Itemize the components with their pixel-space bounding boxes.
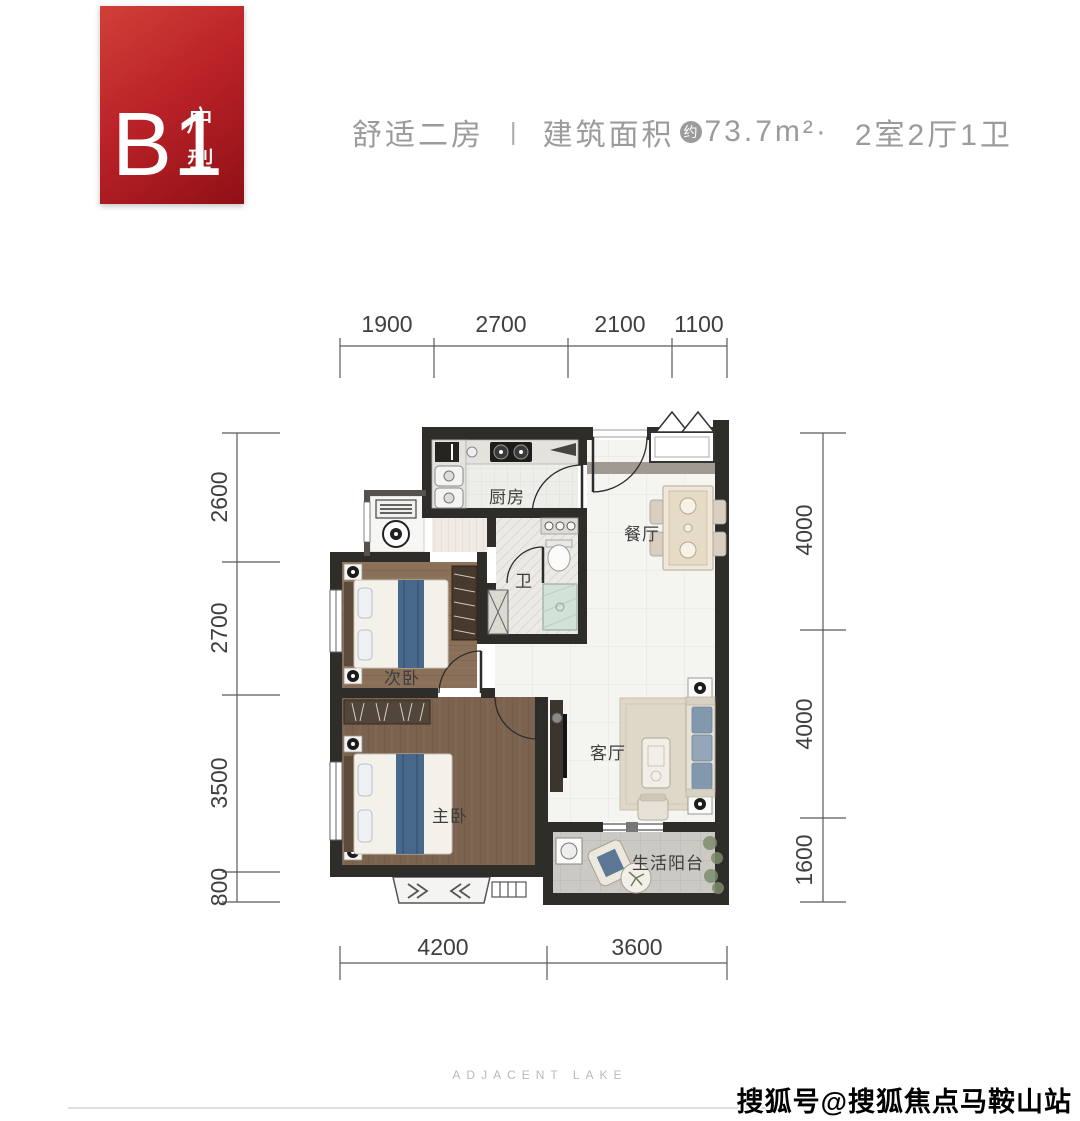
page: B1 户型 舒适二房 | 建筑面积 约 73.7m²· 2室2厅1卫	[0, 0, 1080, 1121]
label-bedroom2: 次卧	[384, 669, 420, 688]
dim-top-2: 2700	[475, 311, 526, 337]
wardrobe	[452, 566, 477, 640]
plant-triangle-icon	[656, 412, 688, 432]
entry-threshold	[593, 430, 647, 437]
dim-top-3: 2100	[594, 311, 645, 337]
entry-sill-wall	[587, 462, 715, 474]
toilet	[548, 545, 570, 571]
dim-right-2: 4000	[791, 698, 817, 749]
dim-right-3: 1600	[791, 834, 817, 885]
label-living: 客厅	[590, 744, 626, 763]
dim-right-1: 4000	[791, 504, 817, 555]
label-balcony: 生活阳台	[632, 854, 704, 873]
fridge	[435, 442, 459, 462]
entry-flower-box	[650, 412, 714, 462]
coffee-table	[642, 738, 670, 788]
label-dining: 餐厅	[624, 525, 660, 544]
dim-bottom-2: 3600	[611, 934, 662, 960]
dim-left-1: 2600	[206, 471, 232, 522]
label-master: 主卧	[432, 807, 468, 826]
dim-left-2: 2700	[206, 602, 232, 653]
shower	[543, 584, 577, 630]
wardrobe	[344, 700, 430, 724]
balcony-sliding-door	[603, 822, 663, 832]
tv	[563, 714, 567, 778]
footer-divider	[68, 1107, 792, 1109]
dim-top-4: 1100	[674, 311, 723, 337]
floor-plan-svg: 厨房 餐厅 卫 次卧 主卧 客厅 生活阳台 1900 2700 2100 110…	[0, 0, 1080, 1121]
watermark-text: 搜狐号@搜狐焦点马鞍山站	[737, 1080, 1072, 1119]
dim-left-3: 3500	[206, 757, 232, 808]
dim-left-4: 800	[206, 868, 232, 906]
bay-window	[393, 877, 490, 903]
dim-bottom-1: 4200	[417, 934, 468, 960]
plant-triangle-icon	[682, 412, 714, 432]
headboard	[344, 582, 354, 666]
headboard	[344, 756, 354, 852]
dim-top-1: 1900	[361, 311, 412, 337]
label-kitchen: 厨房	[489, 488, 525, 507]
label-bath: 卫	[515, 572, 533, 591]
rack	[492, 882, 526, 897]
